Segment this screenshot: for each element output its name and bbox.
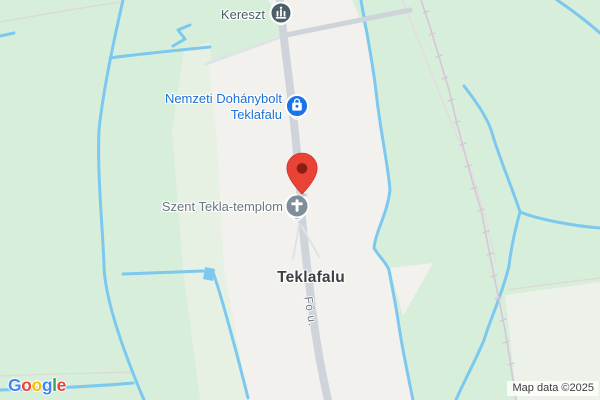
google-logo[interactable]: Google (8, 375, 66, 396)
town-label[interactable]: Teklafalu (272, 270, 350, 286)
poi-label-kereszt[interactable]: Kereszt (221, 7, 265, 23)
map-base-layer (0, 0, 600, 400)
logo-letter: G (8, 375, 21, 395)
poi-label-tobacco-shop[interactable]: Nemzeti Dohánybolt Teklafalu (165, 91, 282, 122)
poi-label-shop-line2: Teklafalu (165, 107, 282, 123)
map-canvas[interactable]: Kereszt Nemzeti Dohánybolt Teklafalu Sze… (0, 0, 600, 400)
logo-letter: o (21, 375, 31, 395)
monument-pin[interactable] (271, 3, 292, 25)
logo-letter: g (42, 375, 52, 395)
poi-label-shop-line1: Nemzeti Dohánybolt (165, 91, 282, 107)
poi-label-church[interactable]: Szent Tekla-templom (162, 199, 283, 215)
logo-letter: e (57, 375, 66, 395)
logo-letter: o (32, 375, 42, 395)
map-attribution: Map data ©2025 (507, 381, 599, 396)
